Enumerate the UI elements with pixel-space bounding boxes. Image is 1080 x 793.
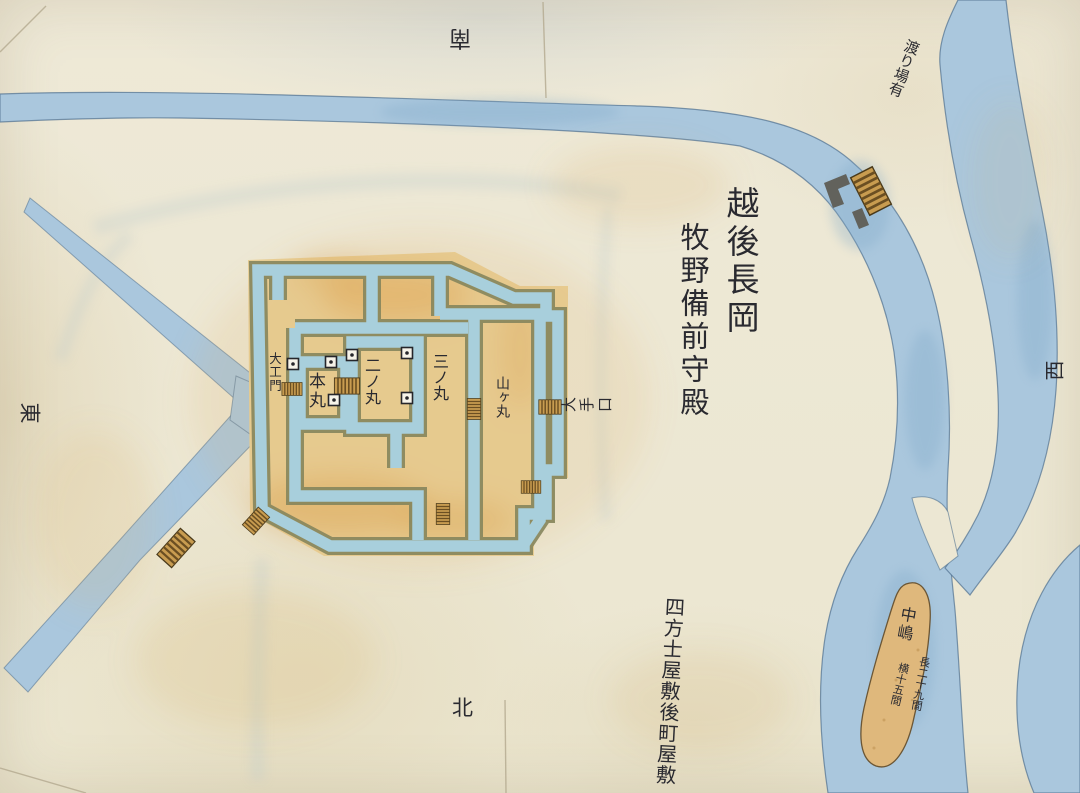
honmaru-label: 本丸 (303, 372, 328, 410)
hatched-bridge-icon (467, 399, 481, 420)
ote-guchi-char3: 口 (594, 397, 615, 412)
road-northwest (24, 198, 262, 412)
roads (4, 198, 264, 692)
river-corner (1017, 545, 1080, 793)
turret-square-icon (329, 395, 340, 406)
road-southwest (4, 412, 258, 692)
hatched-bridge-icon (436, 504, 450, 525)
turret-square-icon (288, 359, 299, 370)
direction-north: 北 (452, 692, 473, 722)
direction-south: 南 (449, 24, 471, 56)
direction-west: 西 (1039, 361, 1068, 381)
turret-square-icon (402, 393, 413, 404)
map-canvas: 越後長岡 牧野備前守殿 南 北 東 西 大工門 本丸 二ノ丸 三ノ丸 山ヶ丸 大… (0, 0, 1080, 793)
ote-guchi-label: 大 手 口 (561, 394, 612, 415)
yamagamaru-label: 山ヶ丸 (492, 376, 512, 418)
turret-square-icon (347, 350, 358, 361)
castle-west-gate-label: 大工門 (265, 352, 284, 393)
direction-east: 東 (16, 403, 46, 424)
sannomaru-label: 三ノ丸 (427, 353, 451, 401)
ninomaru-label: 二ノ丸 (359, 357, 383, 405)
hatched-bridge-icon (521, 481, 541, 494)
hatched-bridge-icon (334, 378, 359, 394)
map-title-line1: 越後長岡 (716, 186, 764, 338)
turret-square-icon (402, 348, 413, 359)
hatched-bridge-icon (282, 383, 302, 396)
turret-square-icon (326, 357, 337, 368)
map-title-line2: 牧野備前守殿 (672, 222, 714, 420)
